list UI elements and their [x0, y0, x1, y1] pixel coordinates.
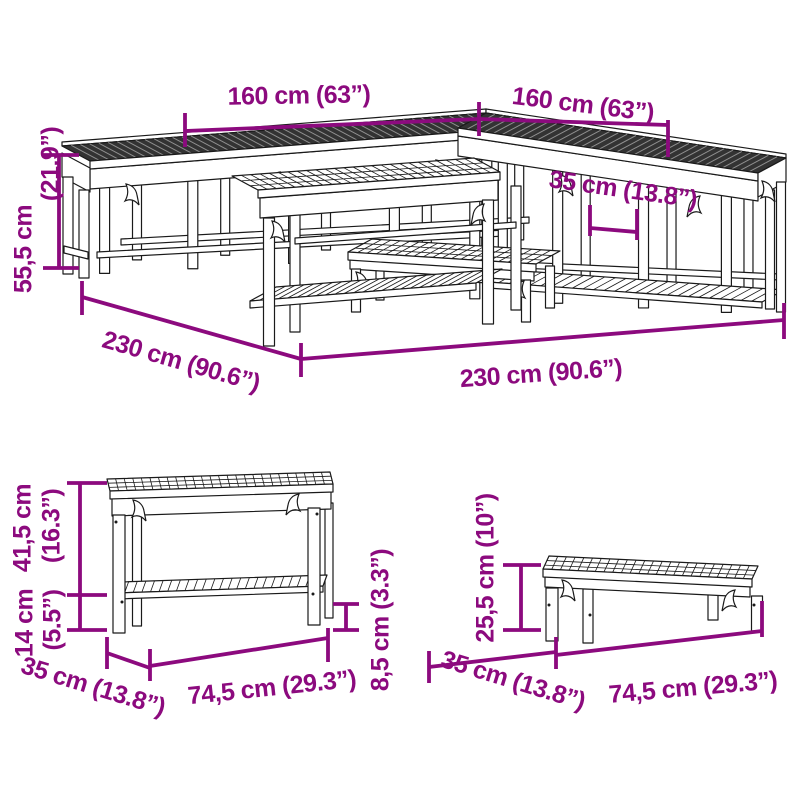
dim-benchA-upper-height-inches: (16.3”)	[40, 489, 65, 563]
dim-main-back-left-width: 160 cm (63”)	[227, 82, 370, 109]
dim-main-height-value: 55,5 cm	[12, 205, 37, 293]
product-dimension-diagram: 160 cm (63”) 160 cm (63”) 35 cm (13.8”) …	[0, 0, 800, 800]
dim-benchA-upper-height-value: 41,5 cm	[11, 484, 36, 572]
dim-benchA-shelf-height-value: 14 cm	[13, 589, 38, 657]
dim-benchB-height: 25,5 cm (10”)	[474, 493, 499, 642]
dim-benchA-clearance: 8,5 cm (3.3”)	[369, 549, 394, 691]
dim-benchA-shelf-height-inches: (5.5”)	[41, 590, 66, 651]
dim-main-height-inches: (21.9”)	[39, 127, 64, 201]
